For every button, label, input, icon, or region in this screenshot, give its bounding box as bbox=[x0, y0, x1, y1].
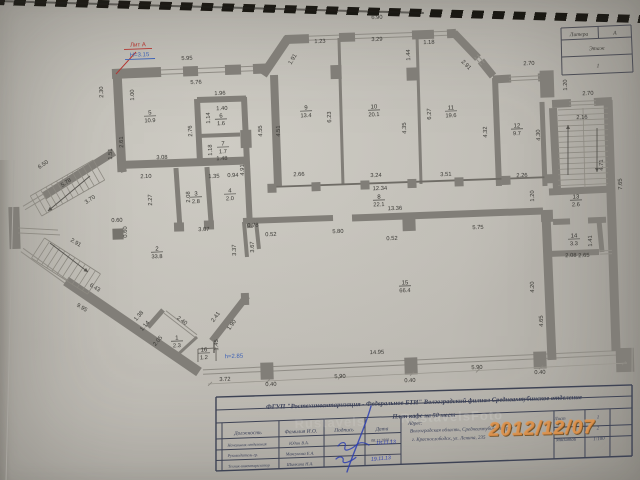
svg-text:Дата: Дата bbox=[375, 426, 389, 432]
svg-text:2.3: 2.3 bbox=[173, 343, 181, 349]
svg-text:13.4: 13.4 bbox=[300, 113, 311, 119]
svg-text:4.30: 4.30 bbox=[536, 129, 542, 140]
svg-text:6.90: 6.90 bbox=[371, 15, 382, 21]
svg-text:г. Краснослободск, ул. Ленина,: г. Краснослободск, ул. Ленина, 235 bbox=[412, 436, 486, 443]
svg-text:2.91: 2.91 bbox=[69, 238, 82, 249]
svg-text:33.8: 33.8 bbox=[151, 254, 162, 260]
svg-text:1.96: 1.96 bbox=[214, 91, 225, 97]
svg-text:2012/12/07: 2012/12/07 bbox=[487, 416, 595, 441]
svg-text:2.41: 2.41 bbox=[210, 311, 222, 324]
svg-text:2.08: 2.08 bbox=[565, 253, 576, 259]
svg-text:3.24: 3.24 bbox=[370, 173, 382, 179]
svg-text:3.37: 3.37 bbox=[232, 244, 238, 255]
svg-text:1.35: 1.35 bbox=[208, 174, 219, 180]
svg-text:3.3: 3.3 bbox=[570, 241, 578, 247]
svg-text:Максунова Е.А.: Максунова Е.А. bbox=[285, 451, 315, 457]
svg-text:3.51: 3.51 bbox=[440, 172, 451, 178]
svg-text:7.65: 7.65 bbox=[618, 178, 624, 189]
svg-text:1.20: 1.20 bbox=[530, 190, 536, 201]
svg-text:2.16: 2.16 bbox=[576, 115, 587, 121]
svg-text:А: А bbox=[612, 30, 617, 36]
svg-text:Юдин В.А.: Юдин В.А. bbox=[288, 440, 309, 446]
svg-text:4.71: 4.71 bbox=[599, 159, 605, 170]
svg-text:2.27: 2.27 bbox=[148, 194, 154, 205]
svg-text:1.48: 1.48 bbox=[216, 156, 227, 162]
svg-text:3.67: 3.67 bbox=[250, 241, 256, 252]
svg-text:1.40: 1.40 bbox=[216, 106, 227, 112]
svg-text:1.38: 1.38 bbox=[133, 310, 145, 323]
svg-text:1.23: 1.23 bbox=[314, 39, 325, 45]
svg-text:13.36: 13.36 bbox=[388, 206, 403, 212]
svg-text:1: 1 bbox=[596, 63, 599, 69]
svg-text:Руководитель гр.: Руководитель гр. bbox=[227, 452, 259, 458]
svg-text:10.9: 10.9 bbox=[144, 118, 155, 124]
svg-text:2.70: 2.70 bbox=[523, 61, 534, 67]
svg-text:2.26: 2.26 bbox=[516, 173, 527, 179]
svg-text:3.08: 3.08 bbox=[156, 155, 167, 161]
svg-text:22.1: 22.1 bbox=[373, 202, 384, 208]
svg-text:20.1: 20.1 bbox=[368, 112, 379, 118]
svg-text:2.40: 2.40 bbox=[175, 315, 188, 327]
svg-text:1: 1 bbox=[597, 415, 600, 420]
svg-text:h=2.85: h=2.85 bbox=[225, 354, 244, 361]
svg-text:Этаж: Этаж bbox=[589, 46, 606, 53]
svg-text:14.95: 14.95 bbox=[370, 350, 385, 356]
svg-text:Лит А: Лит А bbox=[130, 42, 146, 48]
svg-text:2.0: 2.0 bbox=[226, 196, 234, 202]
svg-text:4.91: 4.91 bbox=[240, 164, 246, 175]
svg-text:4.51: 4.51 bbox=[276, 125, 282, 136]
svg-text:2.8: 2.8 bbox=[192, 199, 200, 205]
svg-text:6.27: 6.27 bbox=[427, 108, 433, 119]
svg-text:1.91: 1.91 bbox=[288, 53, 299, 66]
svg-text:3.29: 3.29 bbox=[371, 37, 382, 43]
svg-text:2.6: 2.6 bbox=[572, 202, 580, 208]
svg-text:0.60: 0.60 bbox=[111, 218, 122, 224]
svg-text:4.32: 4.32 bbox=[483, 126, 489, 137]
svg-text:Начальник отделения: Начальник отделения bbox=[226, 441, 266, 447]
svg-text:4.20: 4.20 bbox=[530, 281, 536, 292]
svg-text:2.65: 2.65 bbox=[578, 253, 589, 259]
svg-text:3.70: 3.70 bbox=[84, 195, 97, 206]
svg-text:0.94: 0.94 bbox=[227, 173, 239, 179]
svg-text:5.90: 5.90 bbox=[471, 365, 482, 371]
svg-text:0.52: 0.52 bbox=[386, 236, 397, 242]
svg-text:1.44: 1.44 bbox=[406, 49, 412, 61]
svg-text:2.30: 2.30 bbox=[99, 86, 105, 97]
svg-text:18.11.13: 18.11.13 bbox=[376, 439, 396, 447]
svg-text:2.10: 2.10 bbox=[140, 174, 151, 180]
svg-text:9.7: 9.7 bbox=[513, 131, 521, 137]
svg-text:0.40: 0.40 bbox=[534, 370, 545, 376]
svg-text:5.95: 5.95 bbox=[181, 56, 192, 62]
svg-text:3.07: 3.07 bbox=[198, 227, 209, 233]
svg-text:5.80: 5.80 bbox=[332, 229, 343, 235]
svg-text:1.45: 1.45 bbox=[214, 339, 220, 350]
svg-text:6.50: 6.50 bbox=[37, 160, 50, 171]
svg-text:66.4: 66.4 bbox=[399, 288, 410, 294]
svg-text:1.00: 1.00 bbox=[130, 89, 136, 100]
svg-text:ФГУП "Ростехинвентаризация - Ф: ФГУП "Ростехинвентаризация - Федеральное… bbox=[266, 394, 582, 411]
svg-text:19.6: 19.6 bbox=[445, 113, 456, 119]
svg-text:0.78: 0.78 bbox=[247, 223, 258, 229]
svg-text:2.91: 2.91 bbox=[460, 59, 472, 71]
svg-text:19.11.13: 19.11.13 bbox=[371, 455, 391, 463]
svg-text:Н=3.15: Н=3.15 bbox=[130, 52, 150, 59]
svg-text:2.70: 2.70 bbox=[582, 91, 593, 97]
svg-text:4.55: 4.55 bbox=[258, 125, 264, 136]
svg-text:1.41: 1.41 bbox=[588, 235, 594, 246]
svg-text:1.2: 1.2 bbox=[200, 355, 208, 361]
svg-text:Rustavels: Rustavels bbox=[294, 414, 365, 431]
svg-text:0.40: 0.40 bbox=[265, 382, 276, 388]
svg-text:1.18: 1.18 bbox=[423, 40, 434, 46]
svg-text:1.14: 1.14 bbox=[206, 112, 212, 124]
svg-text:2: 2 bbox=[597, 426, 600, 431]
svg-text:3.72: 3.72 bbox=[219, 377, 230, 383]
svg-text:0.40: 0.40 bbox=[404, 378, 415, 384]
svg-text:1.20: 1.20 bbox=[563, 79, 569, 90]
svg-text:2.66: 2.66 bbox=[293, 172, 304, 178]
svg-text:0.60: 0.60 bbox=[123, 226, 129, 237]
svg-text:2.76: 2.76 bbox=[188, 125, 194, 136]
svg-text:Техник-инвентаризатор: Техник-инвентаризатор bbox=[228, 462, 270, 468]
svg-text:Должность: Должность bbox=[233, 430, 262, 437]
svg-text:1.51: 1.51 bbox=[108, 148, 114, 159]
svg-text:5.75: 5.75 bbox=[472, 225, 483, 231]
svg-text:Литера: Литера bbox=[569, 32, 589, 39]
svg-text:4.35: 4.35 bbox=[402, 122, 408, 133]
svg-text:12.34: 12.34 bbox=[373, 186, 388, 192]
svg-text:4.65: 4.65 bbox=[539, 315, 545, 326]
svg-text:5.90: 5.90 bbox=[334, 374, 345, 380]
svg-text:1.6: 1.6 bbox=[217, 121, 225, 127]
svg-text:6.23: 6.23 bbox=[327, 111, 333, 122]
svg-text:9.95: 9.95 bbox=[75, 303, 88, 314]
svg-text:0.52: 0.52 bbox=[265, 232, 276, 238]
svg-text:2.61: 2.61 bbox=[119, 136, 125, 147]
svg-text:1.18: 1.18 bbox=[208, 144, 214, 155]
svg-text:5.76: 5.76 bbox=[190, 80, 201, 86]
svg-text:1.7: 1.7 bbox=[219, 149, 227, 155]
svg-text:Шинкина Н.А.: Шинкина Н.А. bbox=[285, 461, 313, 467]
